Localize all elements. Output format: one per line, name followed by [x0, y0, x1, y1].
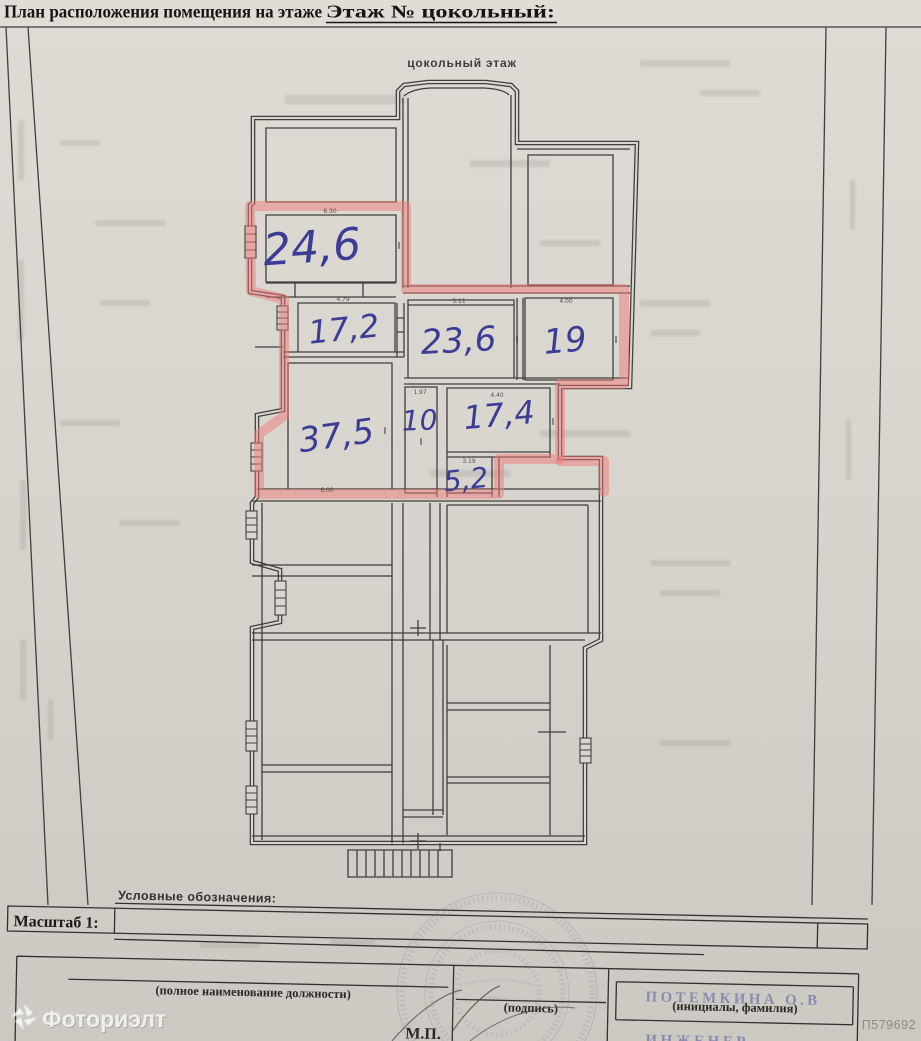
room-area-label-10: 10	[401, 403, 438, 437]
room-area-label-24-6: 24,6	[261, 219, 362, 277]
plan-caption: цокольный этаж	[407, 56, 517, 70]
floor-label: Этаж № цокольный:	[326, 2, 555, 22]
dimension-label: 4.00	[559, 298, 573, 305]
watermark-text: Фоториэлт	[42, 1006, 166, 1032]
dimension-label: 6.30	[323, 208, 337, 215]
dimension-label: 4.79	[336, 296, 350, 303]
dimension-label: 6.00	[320, 487, 334, 494]
mp-label: М.П.	[405, 1025, 441, 1041]
window-hatch	[246, 721, 257, 751]
room-area-label-17-4: 17,4	[462, 393, 536, 437]
window-hatch	[580, 738, 591, 763]
photo-code: П579692	[862, 1018, 916, 1032]
page-title: План расположения помещения на этаже	[4, 2, 322, 22]
room-area-label-5-2: 5,2	[442, 461, 490, 498]
dimension-label: 5.11	[452, 298, 466, 305]
dimension-label: 1.97	[413, 389, 427, 396]
stamp-role-text: ИНЖЕНЕР	[645, 1032, 749, 1041]
scale-label: Масштаб 1:	[13, 913, 98, 932]
room-area-label-23-6: 23,6	[420, 319, 498, 363]
room-area-label-19: 19	[542, 319, 589, 363]
window-hatch	[246, 511, 257, 539]
scanned-document-page: План расположения помещения на этаже Эта…	[0, 0, 921, 1041]
window-hatch	[246, 786, 257, 814]
document-header: План расположения помещения на этаже Эта…	[4, 2, 557, 23]
room-area-label-17-2: 17,2	[306, 306, 381, 351]
window-hatch	[275, 581, 286, 615]
